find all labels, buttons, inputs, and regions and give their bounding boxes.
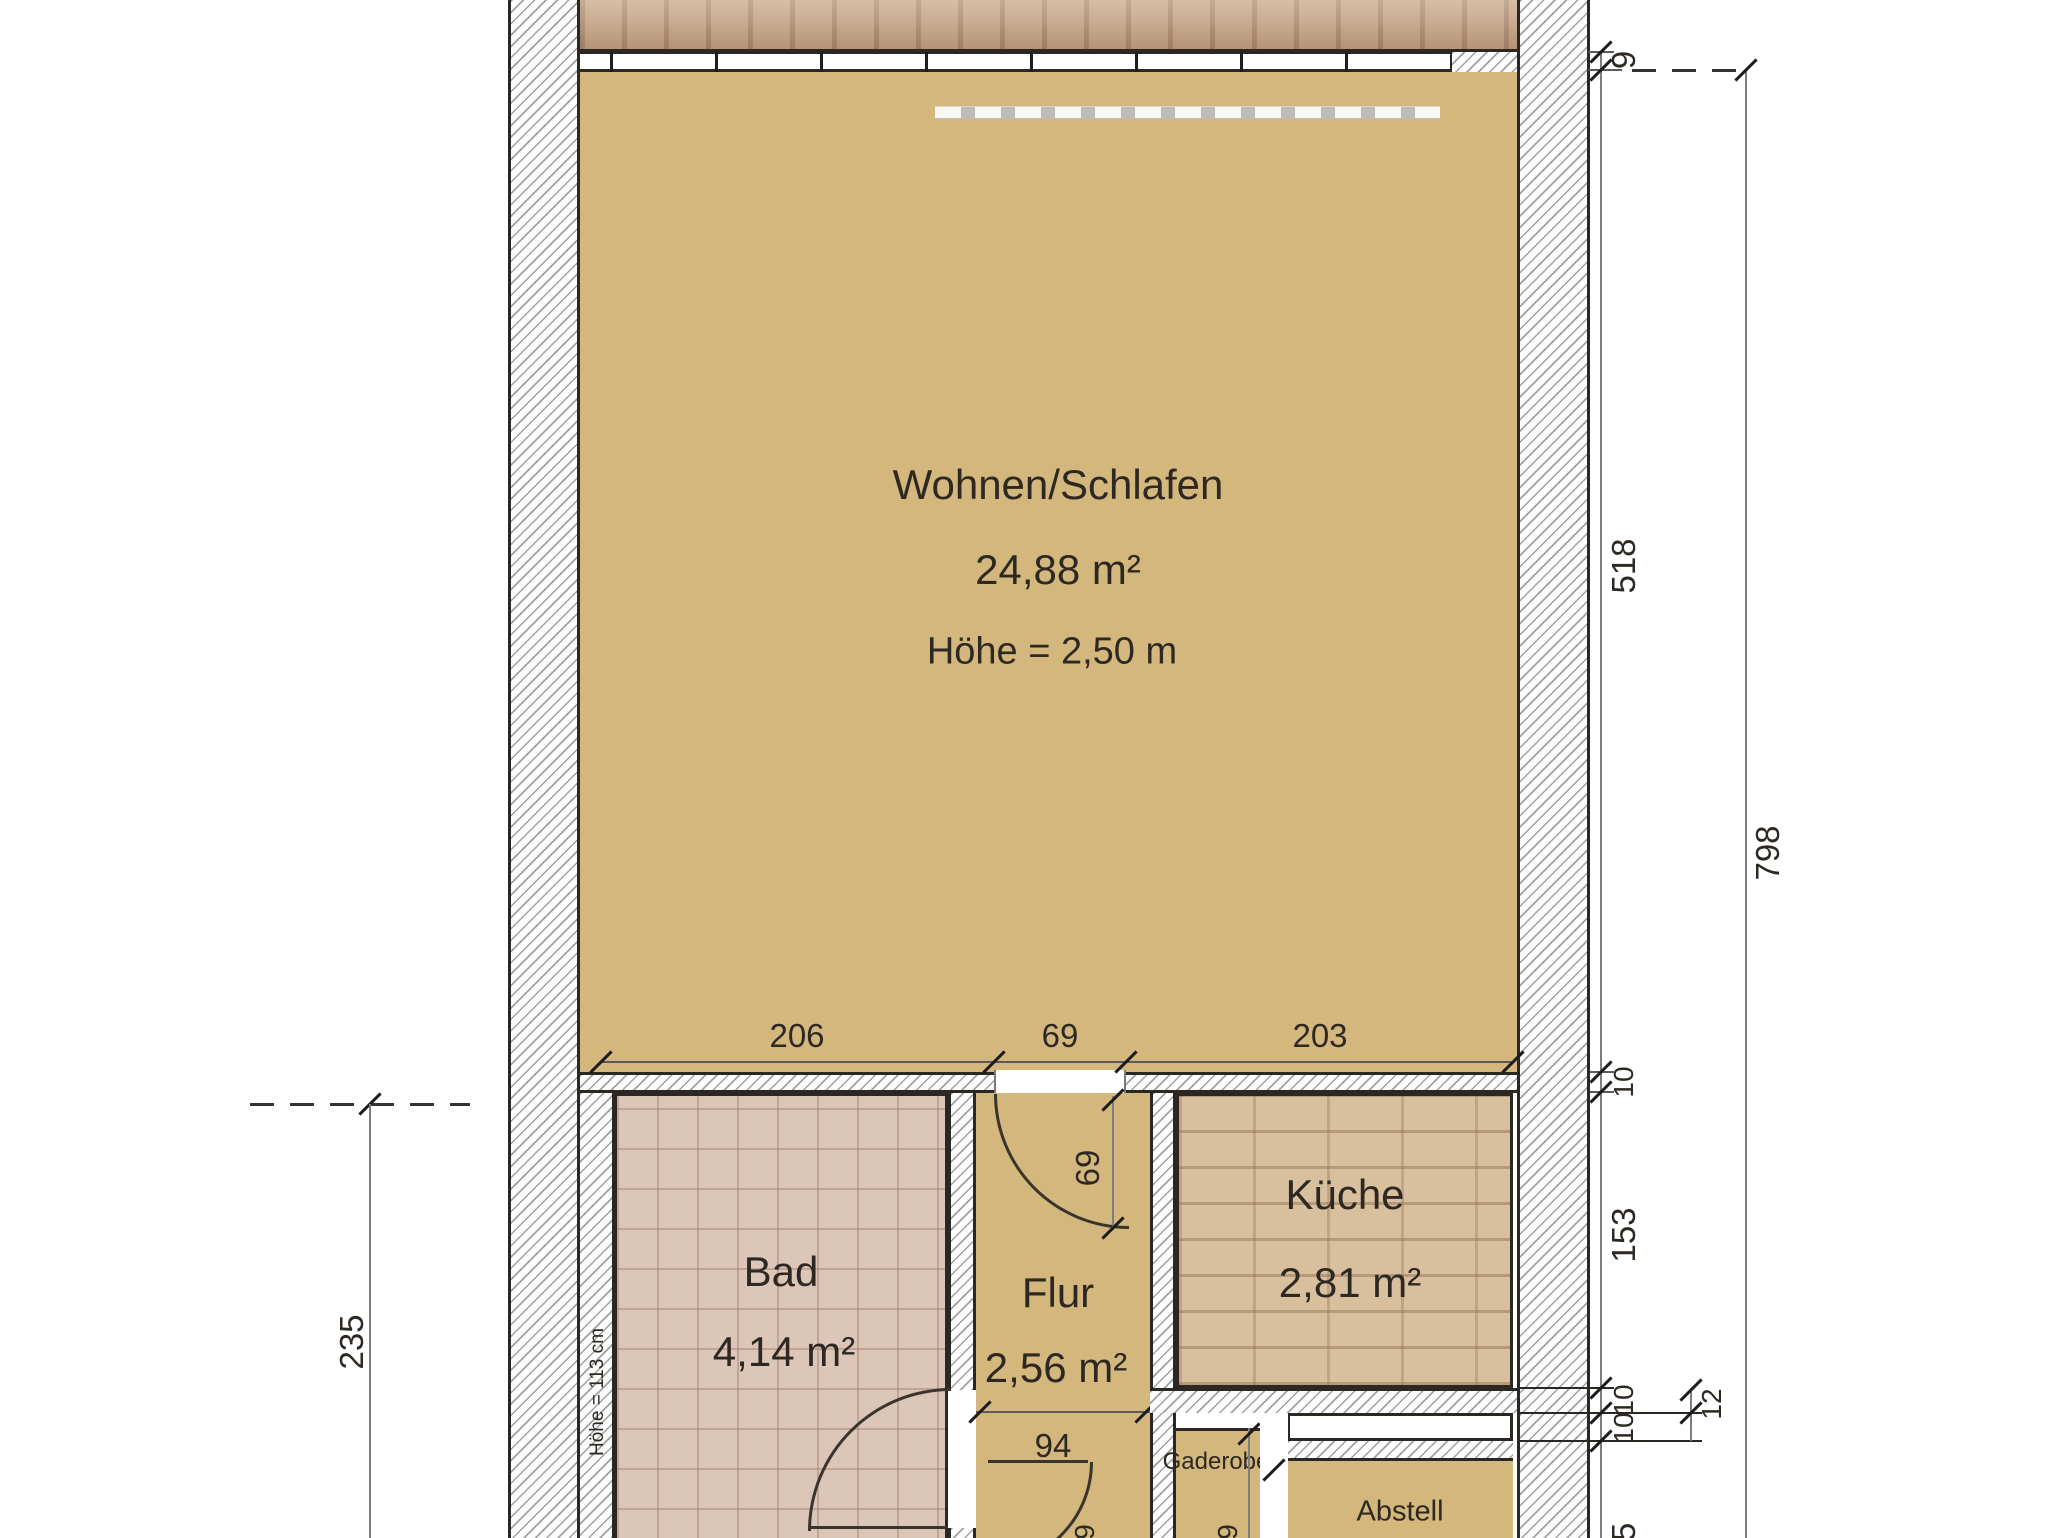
dim-203: 203 [1292, 1017, 1347, 1055]
dim-right-10c: 10 [1608, 1412, 1640, 1443]
right-outer-wall [1517, 0, 1590, 1538]
wohnen-area: 24,88 m² [975, 546, 1141, 594]
wohnen-label: Wohnen/Schlafen [893, 461, 1224, 509]
bad-right-wall-stub [948, 1528, 976, 1538]
dim-left-235: 235 [333, 1314, 371, 1369]
dim-right-10b: 10 [1608, 1384, 1640, 1415]
dim-partial-flur: 9 [1069, 1524, 1101, 1538]
ext-line-dashed [1632, 69, 1745, 72]
dim-right-153: 153 [1605, 1207, 1643, 1262]
window-mullion [610, 52, 613, 72]
window-band [580, 52, 1517, 72]
interior-door-opening [994, 1070, 1126, 1095]
abstell-top-wall [1288, 1441, 1513, 1458]
dim-flur-door-69: 69 [1069, 1150, 1107, 1187]
bad-area: 4,14 m² [713, 1328, 855, 1376]
flur-width-dim-line [976, 1411, 1150, 1413]
duct-niche [1288, 1413, 1513, 1441]
dim-right-12: 12 [1696, 1388, 1728, 1419]
bad-left-lining-wall [580, 1093, 614, 1538]
balcony-strip [580, 0, 1517, 52]
window-mullion [925, 52, 928, 72]
window-pier [1450, 52, 1517, 72]
kueche-area: 2,81 m² [1279, 1259, 1421, 1307]
bad-door-opening [948, 1390, 976, 1528]
window-mullion [820, 52, 823, 72]
floor-plan: Wohnen/Schlafen 24,88 m² Höhe = 2,50 m 2… [0, 0, 2048, 1538]
dim-right-518: 518 [1605, 538, 1643, 593]
dim-206: 206 [769, 1017, 824, 1055]
gaderobe-dim-line [1248, 1428, 1250, 1538]
flur-door-dim-line [1112, 1096, 1114, 1230]
window-mullion [1030, 52, 1033, 72]
right-total-chain [1745, 70, 1747, 1538]
ext-line [1588, 69, 1622, 71]
window-mullion [1240, 52, 1243, 72]
left-outer-wall [508, 0, 580, 1538]
kueche-floor [1176, 1093, 1513, 1388]
window-mullion [1135, 52, 1138, 72]
dim-right-798: 798 [1749, 825, 1787, 880]
flur-label: Flur [1022, 1269, 1094, 1317]
kueche-bottom-wall [1150, 1388, 1517, 1413]
flur-area: 2,56 m² [985, 1344, 1127, 1392]
dim-partial-gaderobe: 9 [1212, 1524, 1244, 1538]
top-dim-line [601, 1061, 1513, 1063]
bad-right-wall [948, 1093, 976, 1390]
dim-right-partial-5: 5 [1605, 1523, 1643, 1538]
left-ext-line-dashed [250, 1103, 470, 1106]
window-mullion [1345, 52, 1348, 72]
kueche-label: Küche [1285, 1171, 1404, 1219]
gaderobe-abstell-gap [1260, 1413, 1288, 1538]
dim-right-10a: 10 [1608, 1066, 1640, 1097]
wohnen-height-note: Höhe = 2,50 m [927, 631, 1177, 674]
glass-parapet-dashed-line [935, 106, 1440, 119]
bad-label: Bad [744, 1248, 819, 1296]
bad-wall-height-note: Höhe = 113 cm [587, 1328, 609, 1456]
bad-door-leaf [810, 1526, 948, 1529]
abstell-label: Abstell [1356, 1496, 1443, 1529]
gaderobe-label: Gaderobe [1163, 1448, 1270, 1476]
dim-right-9: 9 [1605, 51, 1643, 69]
right-dim-chain [1600, 52, 1602, 1538]
dim-69: 69 [1042, 1017, 1079, 1055]
gaderobe-top-gap [1176, 1413, 1260, 1428]
window-mullion [715, 52, 718, 72]
